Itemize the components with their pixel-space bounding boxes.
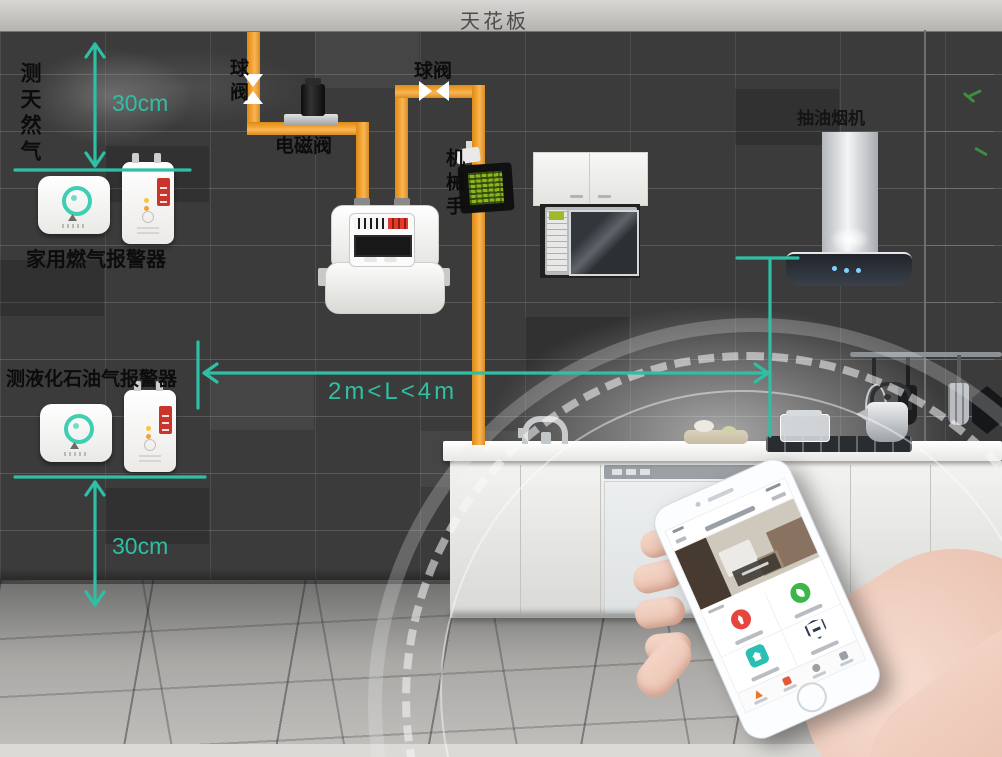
alarm-app-icon bbox=[727, 606, 753, 632]
ceiling-label: 天花板 bbox=[460, 5, 529, 34]
distance-range-label: 2m<L<4m bbox=[328, 378, 457, 406]
flame-glyph bbox=[735, 613, 746, 625]
solenoid-valve-label: 电磁阀 bbox=[275, 131, 332, 158]
ball-valve-left-label: 球阀 bbox=[224, 58, 251, 106]
house-glyph bbox=[750, 650, 763, 662]
eco-app-icon bbox=[787, 580, 813, 606]
kitchen-gas-safety-diagram: 天花板 测天然气 30cm 家用燃气报警器 测液化石油气报警器 2m<L<4m … bbox=[0, 0, 1002, 757]
manipulator-label: 机械手 bbox=[440, 148, 467, 220]
lpg-alarm-label: 测液化石油气报警器 bbox=[6, 364, 177, 391]
household-gas-alarm-label: 家用燃气报警器 bbox=[26, 243, 166, 272]
top-clearance-label: 30cm bbox=[112, 90, 168, 117]
phone-earpiece bbox=[707, 487, 734, 502]
ball-valve-right-label: 球阀 bbox=[414, 56, 452, 83]
leaf-glyph bbox=[796, 589, 805, 598]
shield-icon bbox=[803, 616, 829, 642]
range-hood-label: 抽油烟机 bbox=[797, 104, 865, 129]
natural-gas-test-label: 测天然气 bbox=[14, 62, 44, 166]
home-app-icon bbox=[744, 643, 770, 669]
nav-back bbox=[675, 536, 687, 544]
shield-glyph bbox=[812, 627, 821, 633]
bottom-clearance-label: 30cm bbox=[112, 533, 168, 560]
phone-front-camera bbox=[695, 501, 702, 508]
nav-menu bbox=[771, 491, 786, 501]
